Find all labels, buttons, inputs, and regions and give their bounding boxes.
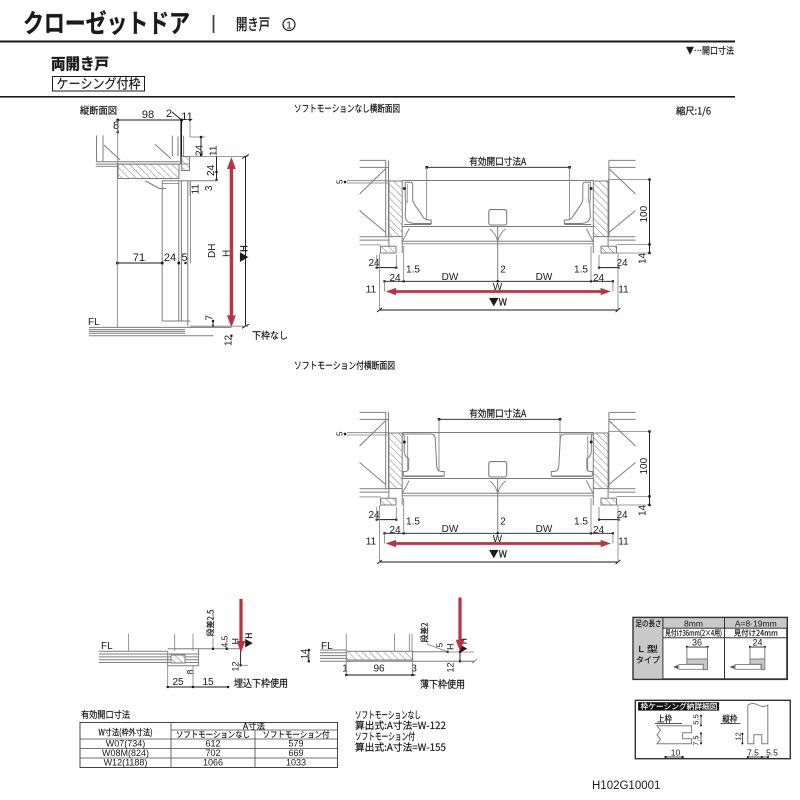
svg-text:24: 24 — [752, 638, 762, 648]
svg-text:669: 669 — [288, 748, 303, 758]
svg-text:12: 12 — [224, 334, 235, 346]
svg-text:11: 11 — [181, 111, 192, 123]
svg-text:5: 5 — [435, 643, 445, 648]
svg-text:5: 5 — [336, 431, 345, 436]
svg-text:H: H — [446, 644, 456, 651]
svg-text:H102G10001: H102G10001 — [592, 780, 660, 792]
svg-text:24: 24 — [593, 525, 605, 536]
svg-text:1: 1 — [342, 664, 348, 675]
svg-text:11: 11 — [618, 285, 629, 296]
svg-text:100: 100 — [639, 205, 650, 222]
svg-text:11: 11 — [191, 184, 202, 195]
svg-text:5.5: 5.5 — [692, 714, 701, 724]
svg-text:14: 14 — [638, 252, 649, 264]
svg-text:2: 2 — [500, 265, 506, 276]
svg-text:W12(1188): W12(1188) — [104, 758, 148, 768]
svg-text:12: 12 — [734, 732, 743, 740]
svg-text:12: 12 — [231, 661, 241, 671]
svg-text:7.5: 7.5 — [747, 748, 759, 758]
svg-text:579: 579 — [288, 739, 303, 749]
svg-text:FL: FL — [101, 641, 113, 652]
svg-text:71: 71 — [133, 252, 145, 264]
svg-text:14: 14 — [638, 504, 649, 516]
svg-text:11: 11 — [618, 537, 629, 548]
svg-text:24: 24 — [206, 164, 217, 176]
svg-text:612: 612 — [205, 739, 220, 749]
svg-text:5: 5 — [336, 179, 345, 184]
svg-text:36: 36 — [692, 638, 702, 648]
svg-text:7.5: 7.5 — [692, 735, 701, 745]
svg-text:11: 11 — [366, 537, 377, 548]
svg-text:11: 11 — [366, 285, 377, 296]
svg-text:4.5: 4.5 — [220, 635, 230, 647]
svg-text:12: 12 — [446, 662, 456, 672]
svg-text:96: 96 — [373, 664, 385, 675]
svg-text:2: 2 — [166, 108, 172, 120]
svg-text:A=8·19mm: A=8·19mm — [735, 619, 777, 629]
svg-text:1033: 1033 — [286, 758, 306, 768]
svg-text:7: 7 — [205, 315, 216, 321]
svg-text:15: 15 — [202, 677, 214, 688]
svg-text:98: 98 — [142, 109, 154, 121]
svg-text:8: 8 — [186, 669, 196, 674]
svg-text:25: 25 — [172, 677, 184, 688]
svg-text:702: 702 — [205, 748, 220, 758]
svg-text:24: 24 — [389, 525, 401, 536]
svg-text:W08M(824): W08M(824) — [102, 748, 149, 758]
svg-text:5.5: 5.5 — [766, 748, 778, 758]
svg-text:3: 3 — [204, 185, 215, 191]
svg-text:24: 24 — [389, 273, 401, 284]
svg-text:10: 10 — [671, 748, 681, 758]
svg-text:24: 24 — [593, 273, 605, 284]
svg-text:W07(734): W07(734) — [106, 739, 146, 749]
svg-text:1.5: 1.5 — [574, 265, 588, 276]
svg-text:1.5: 1.5 — [574, 517, 588, 528]
svg-text:DH: DH — [207, 244, 218, 258]
svg-text:1066: 1066 — [203, 758, 223, 768]
svg-text:2: 2 — [500, 517, 506, 528]
svg-text:FL: FL — [88, 317, 100, 328]
svg-text:1.5: 1.5 — [406, 265, 420, 276]
svg-text:1: 1 — [286, 20, 292, 32]
svg-text:11: 11 — [209, 145, 220, 156]
svg-text:100: 100 — [639, 457, 650, 474]
svg-text:8mm: 8mm — [684, 619, 703, 629]
svg-text:24: 24 — [164, 252, 176, 264]
svg-text:1.5: 1.5 — [406, 517, 420, 528]
